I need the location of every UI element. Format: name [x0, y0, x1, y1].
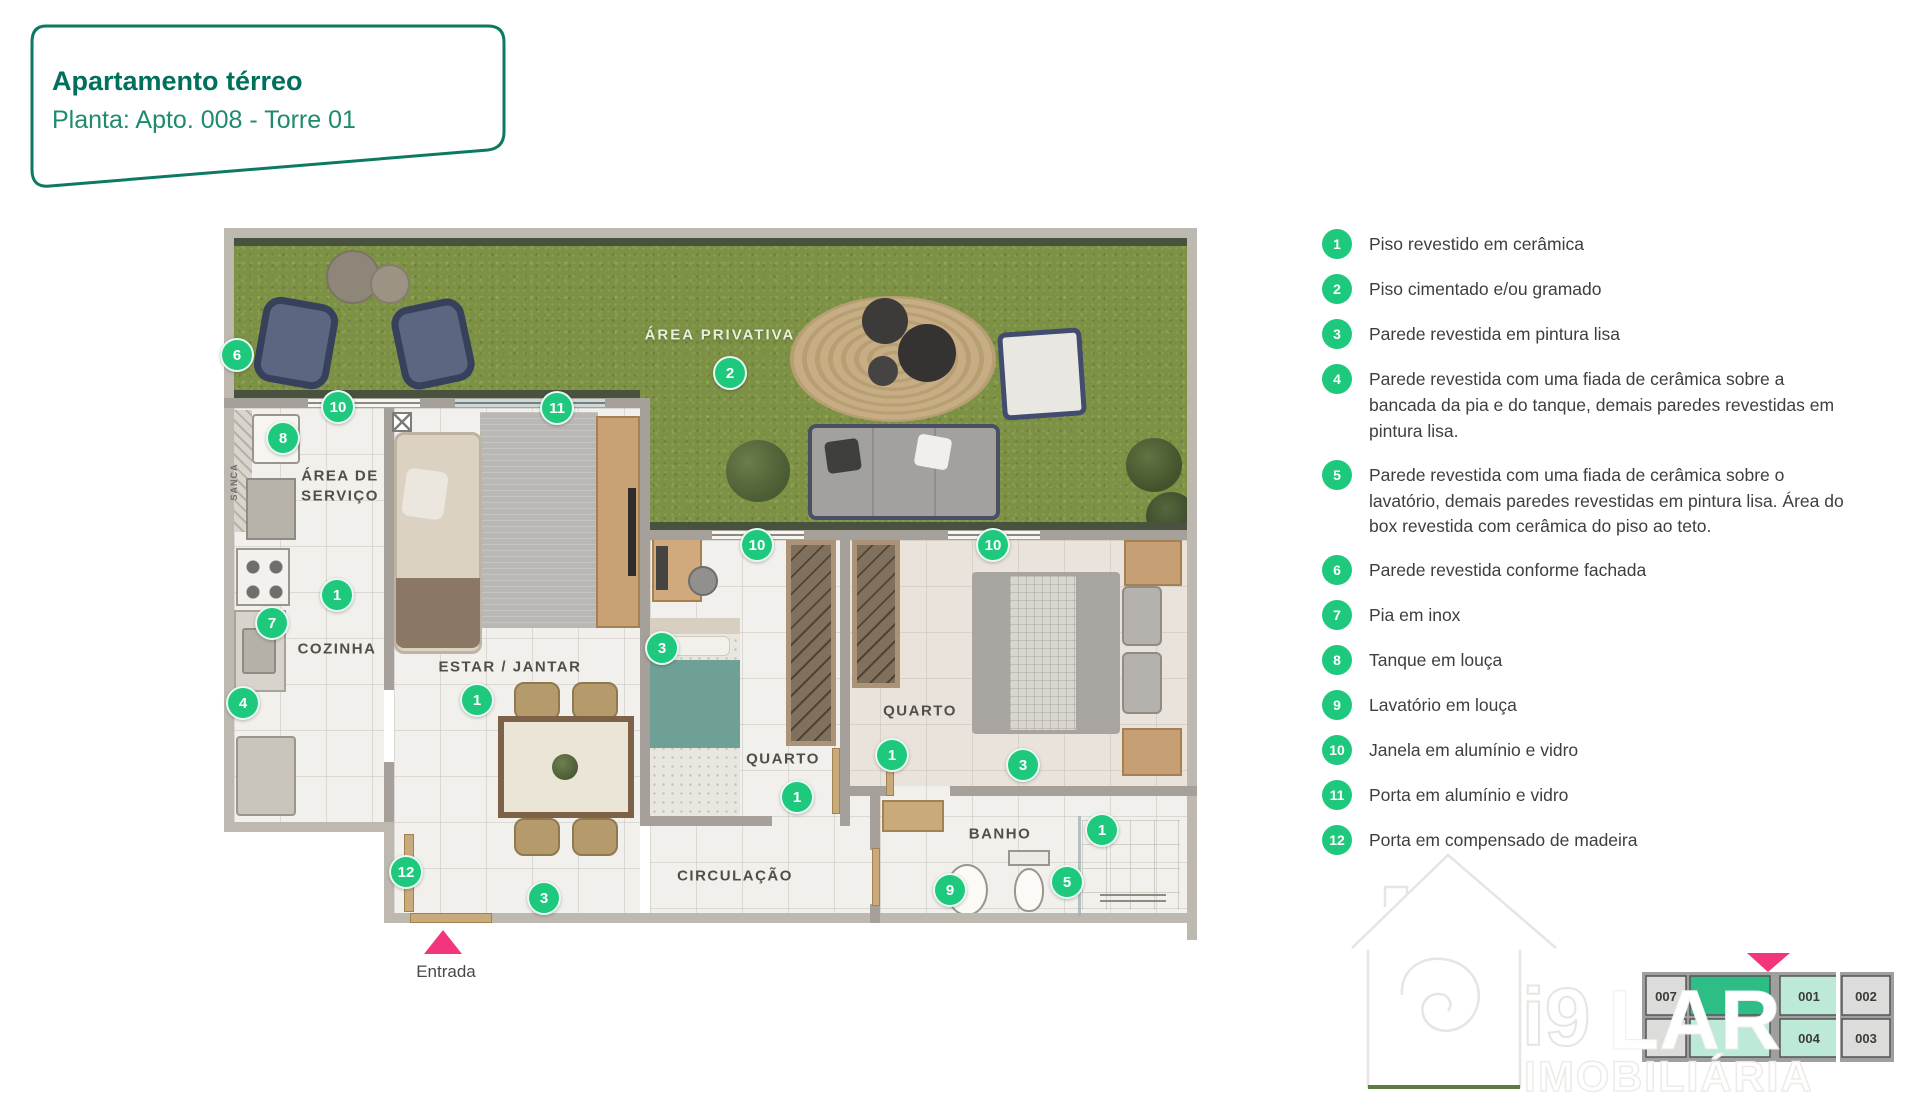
marker-number: 10 [749, 537, 766, 554]
label-estar-jantar: ESTAR / JANTAR [439, 659, 582, 676]
label-quarto-2: QUARTO [883, 703, 957, 720]
bath-counter [882, 800, 944, 832]
single-bed-blanket [650, 660, 740, 748]
entrance-arrow-icon [424, 930, 462, 954]
page-subtitle: Planta: Apto. 008 - Torre 01 [52, 106, 356, 134]
nightstand-1 [1124, 540, 1182, 586]
lounge-chair [997, 327, 1087, 421]
legend-item: 4Parede revestida com uma fiada de cerâm… [1322, 364, 1882, 445]
dining-chair-3 [514, 818, 560, 856]
wall-hall-bath-a [870, 796, 880, 850]
legend-badge: 4 [1322, 364, 1352, 394]
plan-marker: 8 [266, 421, 300, 455]
keyplan-gap [1836, 970, 1840, 1062]
wall-living-bedroom1 [640, 540, 650, 826]
sofa-throw [396, 578, 480, 648]
wall-bottom-b [492, 913, 1197, 923]
plan-marker: 3 [1006, 748, 1040, 782]
hedge-right-wall [650, 522, 1187, 530]
plan-marker: 11 [540, 391, 574, 425]
sofa-pillow-white [913, 433, 952, 470]
keyplan-unit-label: 003 [1855, 1031, 1877, 1046]
legend-text: Parede revestida com uma fiada de cerâmi… [1369, 364, 1847, 445]
marker-number: 1 [473, 692, 481, 709]
tv [628, 488, 636, 576]
legend-badge: 9 [1322, 690, 1352, 720]
plan-marker: 3 [645, 631, 679, 665]
bed-pillow-1 [1122, 586, 1162, 646]
coffee-table-1 [862, 298, 908, 344]
desk-monitor [656, 546, 668, 590]
closet-1 [786, 540, 836, 746]
marker-number: 1 [793, 789, 801, 806]
plan-marker: 1 [780, 780, 814, 814]
legend-text: Parede revestida em pintura lisa [1369, 319, 1620, 348]
dining-chair-1 [514, 682, 560, 720]
shower-glass [1078, 816, 1081, 916]
label-banho: BANHO [969, 826, 1032, 843]
living-sofa-pillow [401, 467, 449, 520]
legend-badge: 3 [1322, 319, 1352, 349]
plan-marker: 1 [460, 683, 494, 717]
keyplan-unit-label: 002 [1855, 989, 1877, 1004]
label-circulacao: CIRCULAÇÃO [677, 868, 793, 885]
fridge [236, 736, 296, 816]
coffee-table-2 [898, 324, 956, 382]
dining-chair-2 [572, 682, 618, 720]
shaft-box [392, 412, 412, 432]
double-bed-runner [1010, 576, 1076, 730]
legend-text: Piso cimentado e/ou gramado [1369, 274, 1602, 303]
sofa-pillow-dark [824, 438, 862, 474]
legend-badge: 7 [1322, 600, 1352, 630]
shower-drain-1 [1100, 894, 1166, 896]
marker-number: 10 [330, 399, 347, 416]
label-area-servico-line2: SERVIÇO [301, 486, 379, 506]
legend-item: 3Parede revestida em pintura lisa [1322, 319, 1882, 349]
closet-2 [852, 540, 900, 688]
wall-garden-step [640, 398, 650, 540]
wall-hall-bath-b [870, 904, 880, 923]
plan-marker: 6 [220, 338, 254, 372]
nightstand-2 [1122, 728, 1182, 776]
wall-outer-right [1187, 228, 1197, 940]
plan-marker: 1 [875, 738, 909, 772]
keyplan-location-arrow-icon [1747, 953, 1790, 972]
legend-text: Parede revestida conforme fachada [1369, 555, 1646, 584]
legend-text: Porta em compensado de madeira [1369, 825, 1637, 854]
desk-chair [688, 566, 718, 596]
table-plant [552, 754, 578, 780]
legend-item: 8Tanque em louça [1322, 645, 1882, 675]
marker-number: 8 [279, 430, 287, 447]
wall-bedroom1-hall [648, 816, 772, 826]
title-box: Apartamento térreo Planta: Apto. 008 - T… [8, 16, 528, 198]
bed-pillow-2 [1122, 652, 1162, 714]
label-area-servico-line1: ÁREA DE [301, 467, 379, 487]
marker-number: 12 [398, 864, 415, 881]
marker-number: 1 [888, 747, 896, 764]
legend-item: 10Janela em alumínio e vidro [1322, 735, 1882, 765]
glass-door-living [455, 399, 605, 407]
legend-badge: 5 [1322, 460, 1352, 490]
legend-item: 5Parede revestida com uma fiada de cerâm… [1322, 460, 1882, 541]
legend-text: Piso revestido em cerâmica [1369, 229, 1584, 258]
brand-i9-text: i9 [1522, 972, 1590, 1063]
wall-outer-left [224, 228, 234, 832]
marker-number: 1 [333, 587, 341, 604]
legend-item: 2Piso cimentado e/ou gramado [1322, 274, 1882, 304]
page-title: Apartamento térreo [52, 66, 303, 96]
legend-text: Porta em alumínio e vidro [1369, 780, 1568, 809]
label-area-privativa: ÁREA PRIVATIVA [645, 327, 796, 344]
stove [236, 548, 290, 606]
marker-number: 10 [985, 537, 1002, 554]
toilet-bowl [1014, 868, 1044, 912]
legend-text: Parede revestida com uma fiada de cerâmi… [1369, 460, 1847, 541]
entrance-threshold [410, 913, 492, 923]
legend-badge: 2 [1322, 274, 1352, 304]
plan-marker: 10 [321, 390, 355, 424]
legend: 1Piso revestido em cerâmica 2Piso ciment… [1322, 229, 1882, 855]
plan-marker: 10 [740, 528, 774, 562]
marker-number: 3 [540, 890, 548, 907]
bedroom1-door-leaf [832, 748, 840, 814]
wall-bedroom2-bath-a [848, 786, 886, 796]
plan-marker: 1 [1085, 813, 1119, 847]
label-cozinha: COZINHA [298, 641, 377, 658]
washer [246, 478, 296, 540]
plan-marker: 12 [389, 855, 423, 889]
legend-item: 9Lavatório em louça [1322, 690, 1882, 720]
marker-number: 3 [1019, 757, 1027, 774]
legend-item: 6Parede revestida conforme fachada [1322, 555, 1882, 585]
label-quarto-1: QUARTO [746, 751, 820, 768]
dining-chair-4 [572, 818, 618, 856]
marker-number: 1 [1098, 822, 1106, 839]
plan-marker: 5 [1050, 865, 1084, 899]
plan-marker: 2 [713, 356, 747, 390]
marker-number: 6 [233, 347, 241, 364]
marker-number: 9 [946, 882, 954, 899]
hedge-left-wall [233, 390, 640, 398]
keyplan-unit-label: 004 [1798, 1031, 1820, 1046]
toilet-tank [1008, 850, 1050, 866]
legend-item: 1Piso revestido em cerâmica [1322, 229, 1882, 259]
living-rug [480, 412, 598, 628]
shower-drain-2 [1100, 900, 1166, 902]
keyplan-unit-label: 001 [1798, 989, 1820, 1004]
plant-1 [726, 440, 790, 502]
bath-door-leaf [872, 848, 880, 906]
legend-badge: 1 [1322, 229, 1352, 259]
entrance-label: Entrada [394, 962, 498, 982]
marker-number: 11 [549, 400, 565, 417]
label-sanca: SANCA [229, 463, 239, 500]
garden-armchair-1 [251, 294, 341, 392]
coffee-table-3 [868, 356, 898, 386]
plan-marker: 3 [527, 881, 561, 915]
plan-marker: 9 [933, 873, 967, 907]
legend-text: Pia em inox [1369, 600, 1460, 629]
legend-text: Tanque em louça [1369, 645, 1502, 674]
hedge-top [233, 238, 1187, 246]
marker-number: 4 [239, 695, 247, 712]
page: Apartamento térreo Planta: Apto. 008 - T… [0, 0, 1920, 1093]
legend-item: 11Porta em alumínio e vidro [1322, 780, 1882, 810]
plant-2 [1126, 438, 1182, 492]
legend-item: 7Pia em inox [1322, 600, 1882, 630]
plan-marker: 1 [320, 578, 354, 612]
marker-number: 7 [268, 615, 276, 632]
legend-badge: 10 [1322, 735, 1352, 765]
plan-marker: 10 [976, 528, 1010, 562]
brand-watermark: 007 001 002 004 003 i9 LAR IMOBILIÁRIA [1340, 845, 1920, 1093]
marker-number: 3 [658, 640, 666, 657]
plan-marker: 4 [226, 686, 260, 720]
wall-bedrooms-divider [840, 540, 850, 826]
wall-outer-top [224, 228, 1197, 238]
wall-kitchen-b [384, 762, 394, 822]
wall-bottom-a [384, 913, 410, 923]
legend-badge: 8 [1322, 645, 1352, 675]
garden-table-small [370, 264, 410, 304]
legend-badge: 6 [1322, 555, 1352, 585]
legend-badge: 11 [1322, 780, 1352, 810]
wall-bottom-left [224, 822, 394, 832]
legend-badge: 12 [1322, 825, 1352, 855]
brand-imobiliaria-text: IMOBILIÁRIA [1524, 1053, 1814, 1093]
legend-text: Janela em alumínio e vidro [1369, 735, 1578, 764]
plan-marker: 7 [255, 606, 289, 640]
legend-text: Lavatório em louça [1369, 690, 1517, 719]
wall-kitchen-a [384, 408, 394, 690]
marker-number: 5 [1063, 874, 1071, 891]
marker-number: 2 [726, 365, 734, 382]
wall-bedroom2-bath-b [950, 786, 1197, 796]
legend-item: 12Porta em compensado de madeira [1322, 825, 1882, 855]
